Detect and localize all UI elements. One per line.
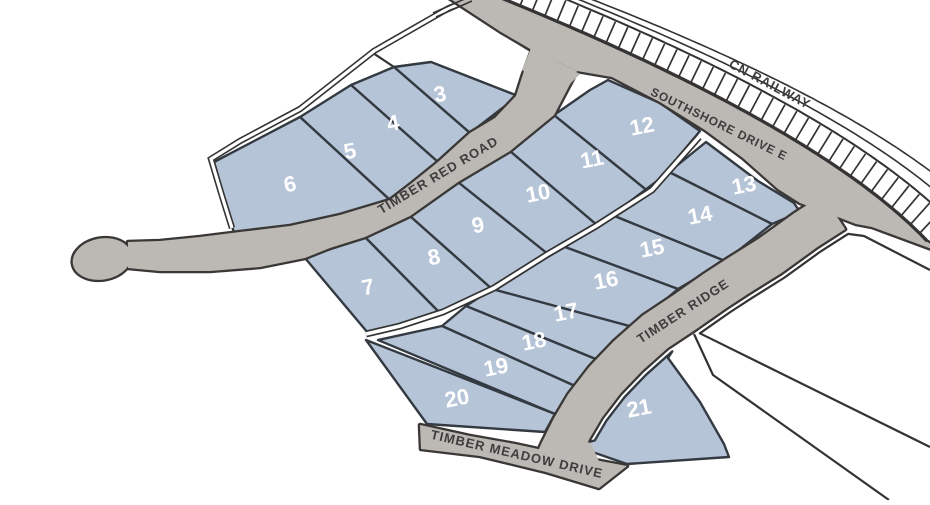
- svg-text:20: 20: [443, 383, 472, 412]
- svg-text:10: 10: [524, 178, 553, 207]
- svg-text:12: 12: [628, 111, 657, 140]
- svg-text:11: 11: [578, 145, 606, 174]
- svg-text:13: 13: [730, 170, 759, 199]
- svg-text:19: 19: [482, 352, 511, 381]
- svg-text:16: 16: [592, 265, 621, 294]
- svg-text:17: 17: [552, 297, 581, 326]
- svg-text:21: 21: [625, 393, 654, 422]
- svg-text:15: 15: [638, 233, 667, 262]
- svg-text:18: 18: [520, 326, 549, 355]
